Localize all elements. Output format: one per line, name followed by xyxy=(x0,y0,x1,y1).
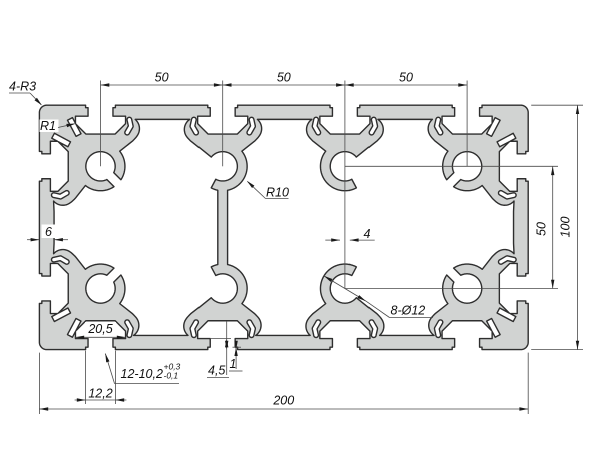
svg-text:R10: R10 xyxy=(266,186,289,200)
svg-text:50: 50 xyxy=(535,222,549,236)
svg-text:-0,1: -0,1 xyxy=(164,371,179,381)
svg-text:6: 6 xyxy=(45,225,52,239)
svg-text:50: 50 xyxy=(277,71,291,85)
svg-text:50: 50 xyxy=(399,71,413,85)
svg-text:20,5: 20,5 xyxy=(87,322,112,336)
svg-text:12,2: 12,2 xyxy=(88,387,112,401)
svg-text:200: 200 xyxy=(272,394,294,408)
svg-text:100: 100 xyxy=(559,217,573,238)
svg-text:4,5: 4,5 xyxy=(208,364,225,378)
svg-text:12-10,2: 12-10,2 xyxy=(121,367,163,381)
svg-text:4: 4 xyxy=(364,227,371,241)
svg-text:1: 1 xyxy=(230,357,237,371)
svg-text:8-Ø12: 8-Ø12 xyxy=(391,304,426,318)
svg-text:4-R3: 4-R3 xyxy=(9,80,36,94)
svg-text:R1: R1 xyxy=(40,119,56,133)
svg-text:50: 50 xyxy=(155,71,169,85)
